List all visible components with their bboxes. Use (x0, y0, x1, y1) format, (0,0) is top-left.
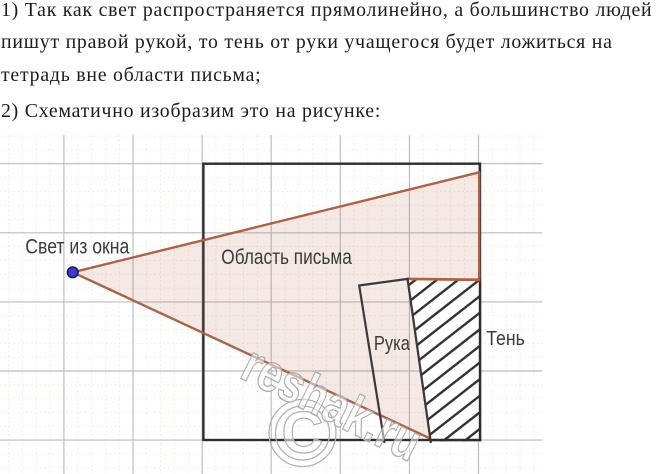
svg-text:Область письма: Область письма (221, 245, 352, 269)
svg-text:Рука: Рука (374, 332, 410, 355)
svg-text:Свет из окна: Свет из окна (25, 234, 129, 258)
svg-text:Тень: Тень (486, 327, 525, 350)
